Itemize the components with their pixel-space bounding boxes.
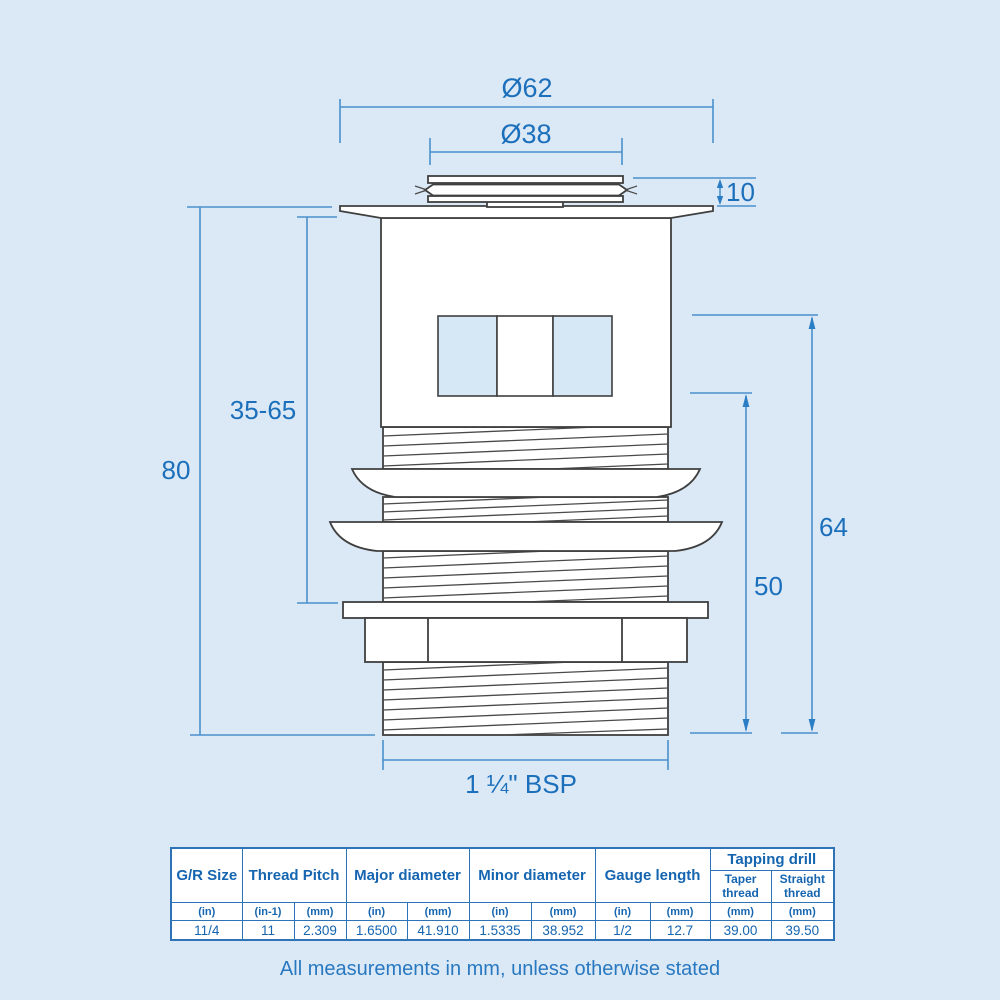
col-header-straight-thread: Straight thread xyxy=(771,871,834,903)
label-adjust-range: 35-65 xyxy=(230,395,297,425)
unit-cell: (mm) xyxy=(531,903,595,921)
unit-cell: (in) xyxy=(595,903,650,921)
thread-spec-table: G/R Size Thread Pitch Major diameter Min… xyxy=(170,847,835,941)
col-header-taper-thread: Taper thread xyxy=(710,871,771,903)
col-header-gauge-length: Gauge length xyxy=(595,848,710,903)
value-cell: 2.309 xyxy=(294,921,346,941)
unit-cell: (in-1) xyxy=(242,903,294,921)
thread-section-mid-lower xyxy=(383,551,668,602)
thread-section-mid-upper xyxy=(383,497,668,522)
unit-cell: (mm) xyxy=(407,903,469,921)
value-cell: 1.5335 xyxy=(469,921,531,941)
value-cell: 12.7 xyxy=(650,921,710,941)
thread-section-lower xyxy=(383,662,668,735)
value-cell: 11 xyxy=(242,921,294,941)
units-row: (in) (in-1) (mm) (in) (mm) (in) (mm) (in… xyxy=(171,903,834,921)
dim-adjust-range xyxy=(297,217,338,603)
rubber-washer-top xyxy=(352,469,700,497)
value-cell: 39.50 xyxy=(771,921,834,941)
label-lower-thread-span: 50 xyxy=(754,571,783,601)
value-cell: 1/2 xyxy=(595,921,650,941)
dim-lower-thread-span xyxy=(690,393,752,733)
cap-seal-washer xyxy=(425,185,627,196)
value-cell: 39.00 xyxy=(710,921,771,941)
value-cell: 1.6500 xyxy=(346,921,407,941)
backnut xyxy=(365,618,687,662)
col-header-thread-pitch: Thread Pitch xyxy=(242,848,346,903)
backnut-washer xyxy=(343,602,708,618)
label-outer-diameter: Ø62 xyxy=(501,73,552,103)
dim-thread-size xyxy=(383,740,668,770)
label-cap-height: 10 xyxy=(726,177,755,207)
label-thread-size: 1 ¼" BSP xyxy=(465,769,577,799)
dim-total-height xyxy=(187,207,375,735)
waste-fitting-body xyxy=(330,176,722,735)
thread-section-upper xyxy=(383,427,668,469)
unit-cell: (in) xyxy=(171,903,242,921)
col-header-major-diameter: Major diameter xyxy=(346,848,469,903)
col-header-tapping-drill: Tapping drill xyxy=(710,848,834,871)
cap-top-plate xyxy=(428,176,623,183)
unit-cell: (in) xyxy=(469,903,531,921)
cap-bottom-plate xyxy=(428,196,623,202)
measurements-footnote: All measurements in mm, unless otherwise… xyxy=(0,958,1000,981)
basin-waste-technical-drawing: Ø62 Ø38 10 80 35-65 64 50 1 ¼" BSP xyxy=(0,0,1000,845)
unit-cell: (mm) xyxy=(710,903,771,921)
label-inner-diameter: Ø38 xyxy=(500,119,551,149)
label-upper-thread-span: 64 xyxy=(819,512,848,542)
rubber-washer-bottom xyxy=(330,522,722,551)
label-total-height: 80 xyxy=(162,455,191,485)
values-row: 11/4 11 2.309 1.6500 41.910 1.5335 38.95… xyxy=(171,921,834,941)
value-cell: 41.910 xyxy=(407,921,469,941)
cap-assembly xyxy=(415,176,637,207)
col-header-gr-size: G/R Size xyxy=(171,848,242,903)
col-header-minor-diameter: Minor diameter xyxy=(469,848,595,903)
value-cell: 11/4 xyxy=(171,921,242,941)
unit-cell: (mm) xyxy=(294,903,346,921)
unit-cell: (in) xyxy=(346,903,407,921)
value-cell: 38.952 xyxy=(531,921,595,941)
unit-cell: (mm) xyxy=(650,903,710,921)
unit-cell: (mm) xyxy=(771,903,834,921)
overflow-slots xyxy=(438,316,612,396)
